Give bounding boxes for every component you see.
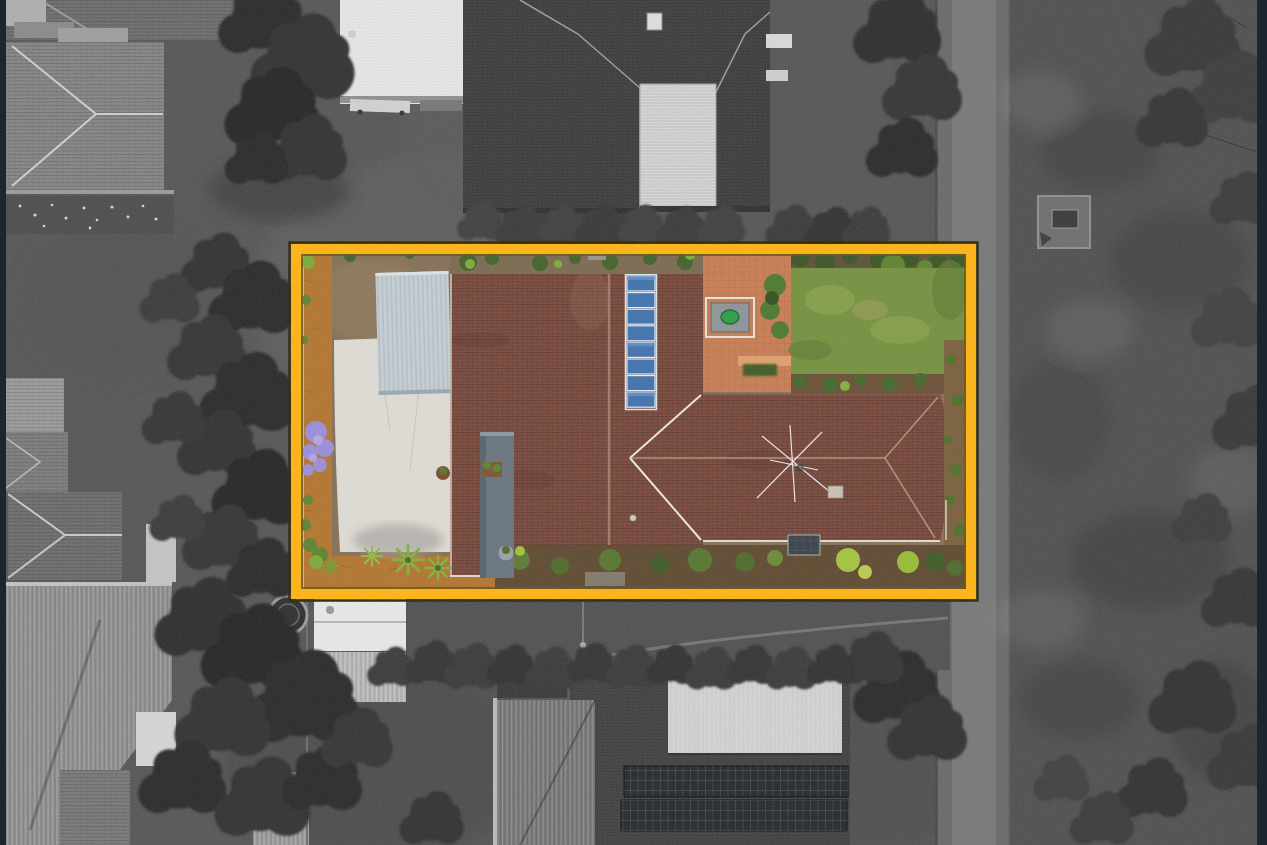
left-frame-bar	[0, 0, 6, 845]
right-frame-bar	[1257, 0, 1267, 845]
aerial-photo	[0, 0, 1267, 845]
aerial-photo-frame	[0, 0, 1267, 845]
neighborhood-greyscale	[6, 0, 1267, 845]
photo-grain	[6, 0, 1257, 845]
